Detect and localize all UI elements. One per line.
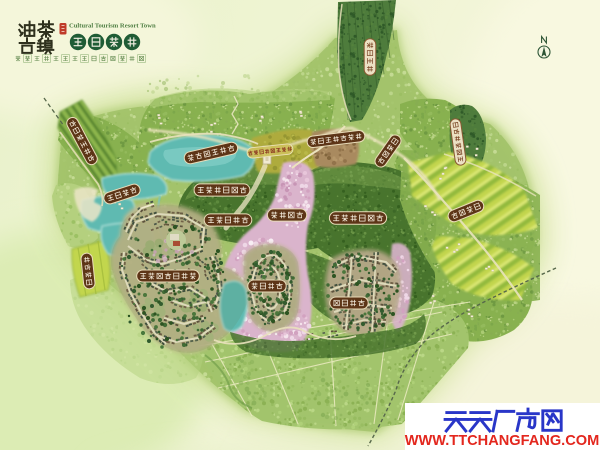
svg-text:WWW.TTCHANGFANG.COM: WWW.TTCHANGFANG.COM: [405, 433, 600, 449]
svg-text:Cultural Tourism Resort Town: Cultural Tourism Resort Town: [69, 23, 156, 30]
